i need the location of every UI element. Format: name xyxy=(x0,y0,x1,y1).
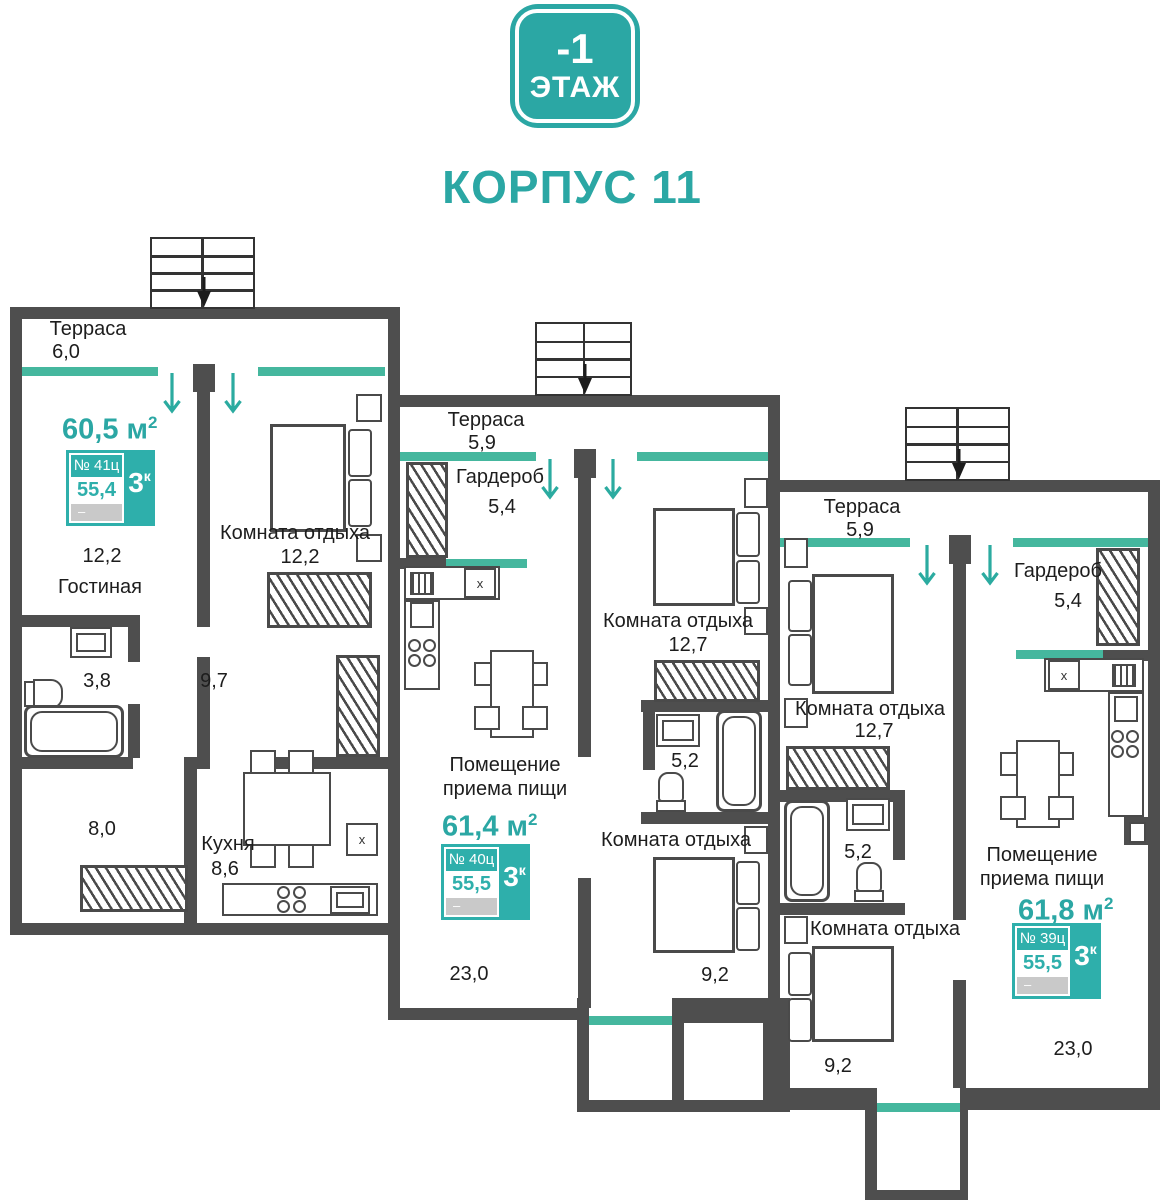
floor-badge-border xyxy=(515,9,635,123)
stove-icon xyxy=(277,900,290,913)
pillow-icon xyxy=(788,952,812,996)
pillow-icon xyxy=(348,429,372,477)
chair-icon xyxy=(250,750,276,774)
stove-icon xyxy=(293,900,306,913)
stove-icon xyxy=(277,886,290,899)
unit-status-bar: – xyxy=(446,898,497,915)
bathtub-icon xyxy=(716,710,762,812)
room-label: Комната отдыха xyxy=(220,522,370,545)
chair-icon xyxy=(522,706,548,730)
unit-living-area: 55,5 xyxy=(1017,952,1068,975)
nightstand-icon xyxy=(784,538,808,568)
room-label: Помещение xyxy=(449,754,560,777)
wardrobe-icon xyxy=(406,462,448,558)
toilet-icon xyxy=(656,800,686,812)
room-area: 8,6 xyxy=(211,858,239,881)
room-area: 12,7 xyxy=(669,634,708,657)
unit-number: № 40ц xyxy=(446,849,497,871)
floor-plan: -1 ЭТАЖ КОРПУС 11 xyxy=(0,0,1167,1200)
window-strip xyxy=(258,367,385,376)
chair-icon xyxy=(288,750,314,774)
unit-card[interactable]: № 40ц 55,5 – 3к xyxy=(441,844,530,920)
unit-rooms-badge: 3к xyxy=(1073,926,1098,996)
interior-wall xyxy=(578,452,591,757)
bath-sink-icon xyxy=(656,714,700,747)
window-strip xyxy=(637,452,768,461)
pillow-icon xyxy=(736,512,760,557)
entry-arrow-icon xyxy=(604,458,622,500)
stairs-icon xyxy=(150,237,255,309)
room-label: Гардероб xyxy=(1014,560,1102,583)
room-area: 12,2 xyxy=(281,546,320,569)
interior-wall xyxy=(641,812,768,824)
room-label: Терраса xyxy=(50,318,127,341)
toilet-icon xyxy=(658,772,684,802)
stove-icon xyxy=(408,654,421,667)
bay-niche xyxy=(589,998,672,1100)
pillow-icon xyxy=(736,907,760,951)
bathtub-icon xyxy=(24,705,124,758)
interior-wall xyxy=(780,903,905,915)
bed-icon xyxy=(653,857,735,953)
unit-status-bar: – xyxy=(1017,977,1068,994)
entry-arrow-icon xyxy=(918,544,936,586)
room-area: 3,8 xyxy=(83,670,111,693)
unit-card-left: № 39ц 55,5 – xyxy=(1015,926,1070,996)
interior-wall xyxy=(128,704,140,758)
room-area: 5,9 xyxy=(468,432,496,455)
room-area: 12,7 xyxy=(855,720,894,743)
entry-arrow-icon xyxy=(163,372,181,414)
entry-arrow-icon xyxy=(981,544,999,586)
fridge-mark: x xyxy=(359,832,366,847)
nightstand-icon xyxy=(784,916,808,944)
floor-badge: -1 ЭТАЖ xyxy=(510,4,640,128)
stove-icon xyxy=(423,639,436,652)
bed-icon xyxy=(812,574,894,694)
bed-icon xyxy=(653,508,735,606)
interior-wall xyxy=(22,615,140,627)
chair-icon xyxy=(1048,796,1074,820)
kitchen-sink-icon xyxy=(1112,664,1136,687)
bath-sink-icon xyxy=(846,798,890,831)
room-label: Комната отдыха xyxy=(601,829,751,852)
room-area: 9,2 xyxy=(701,964,729,987)
chair-icon xyxy=(474,706,500,730)
dining-table-icon xyxy=(243,772,331,846)
room-label: приема пищи xyxy=(443,778,567,801)
unit-card[interactable]: № 41ц 55,4 – 3к xyxy=(66,450,155,526)
room-area: 5,2 xyxy=(844,841,872,864)
room-label: Комната отдыха xyxy=(810,918,960,941)
wardrobe-icon xyxy=(267,572,372,628)
window-strip xyxy=(589,1016,672,1025)
kitchen-cabinet xyxy=(410,602,434,628)
unit-number: № 41ц xyxy=(71,455,122,477)
room-area: 9,7 xyxy=(200,670,228,693)
bath-sink-icon xyxy=(70,627,112,658)
unit-rooms-badge: 3к xyxy=(502,847,527,917)
room-area: 23,0 xyxy=(1054,1038,1093,1061)
nightstand-icon xyxy=(356,394,382,422)
pillow-icon xyxy=(788,998,812,1042)
bathtub-icon xyxy=(784,800,830,902)
unit-rooms-badge: 3к xyxy=(127,453,152,523)
unit-card-left: № 41ц 55,4 – xyxy=(69,453,124,523)
window-strip xyxy=(877,1103,960,1112)
entry-arrow-icon xyxy=(224,372,242,414)
interior-wall xyxy=(953,980,966,1088)
room-area: 5,4 xyxy=(1054,590,1082,613)
fridge-mark: x xyxy=(477,576,484,591)
interior-wall xyxy=(953,538,966,920)
room-label: Комната отдыха xyxy=(795,698,945,721)
room-label: Комната отдыха xyxy=(603,610,753,633)
stairs-icon xyxy=(905,407,1010,481)
stove-icon xyxy=(1126,745,1139,758)
stairs-down-arrow-icon xyxy=(951,449,967,479)
room-area: 5,4 xyxy=(488,496,516,519)
bay-niche xyxy=(684,1023,763,1100)
room-area: 6,0 xyxy=(52,341,80,364)
pillow-icon xyxy=(788,634,812,686)
fridge-icon: x xyxy=(464,568,496,598)
unit-card[interactable]: № 39ц 55,5 – 3к xyxy=(1012,923,1101,999)
kitchen-sink-icon xyxy=(330,886,370,914)
shaft-inner xyxy=(1129,822,1146,843)
unit-status-bar: – xyxy=(71,504,122,521)
room-label: Терраса xyxy=(824,496,901,519)
room-area: 12,2 xyxy=(83,545,122,568)
window-strip xyxy=(1013,538,1148,547)
room-label: Помещение xyxy=(986,844,1097,867)
pillow-icon xyxy=(736,560,760,604)
stove-icon xyxy=(1111,745,1124,758)
unit-total-area: 61,4 м2 xyxy=(442,810,537,844)
toilet-icon xyxy=(854,890,884,902)
room-area: 8,0 xyxy=(88,818,116,841)
wardrobe-icon xyxy=(654,660,760,702)
stove-icon xyxy=(423,654,436,667)
unit-living-area: 55,5 xyxy=(446,873,497,896)
stove-icon xyxy=(293,886,306,899)
interior-wall xyxy=(197,367,210,627)
kitchen-sink-icon xyxy=(410,572,434,595)
stairs-down-arrow-icon xyxy=(577,364,593,394)
room-label: Гостиная xyxy=(58,576,142,599)
fridge-icon: x xyxy=(1048,660,1080,690)
fridge-mark: x xyxy=(1061,668,1068,683)
chair-icon xyxy=(288,844,314,868)
wardrobe-icon xyxy=(80,865,188,912)
wardrobe-icon xyxy=(786,746,890,790)
stove-icon xyxy=(1111,730,1124,743)
unit-number: № 39ц xyxy=(1017,928,1068,950)
interior-wall xyxy=(578,878,591,1008)
pillow-icon xyxy=(348,479,372,527)
stairs-icon xyxy=(535,322,632,396)
chair-icon xyxy=(1000,796,1026,820)
interior-wall xyxy=(643,712,655,770)
toilet-icon xyxy=(856,862,882,892)
bed-icon xyxy=(270,424,346,532)
stairs-down-arrow-icon xyxy=(196,277,212,307)
room-area: 5,9 xyxy=(846,519,874,542)
wardrobe-icon xyxy=(1096,548,1140,646)
bed-icon xyxy=(812,946,894,1042)
pillow-icon xyxy=(788,580,812,632)
kitchen-cabinet xyxy=(1114,696,1138,722)
stove-icon xyxy=(1126,730,1139,743)
stove-icon xyxy=(408,639,421,652)
room-area: 9,2 xyxy=(824,1055,852,1078)
unit-card-left: № 40ц 55,5 – xyxy=(444,847,499,917)
unit-total-area: 60,5 м2 xyxy=(62,413,157,447)
nightstand-icon xyxy=(744,478,768,508)
unit-living-area: 55,4 xyxy=(71,479,122,502)
room-label: Кухня xyxy=(201,833,255,856)
wardrobe-icon xyxy=(336,655,380,757)
fridge-icon: x xyxy=(346,823,378,856)
interior-wall xyxy=(184,757,210,769)
interior-wall xyxy=(128,627,140,662)
interior-wall xyxy=(22,757,133,769)
building-title: КОРПУС 11 xyxy=(442,160,702,214)
room-label: приема пищи xyxy=(980,868,1104,891)
pillow-icon xyxy=(736,861,760,905)
room-area: 5,2 xyxy=(671,750,699,773)
room-label: Терраса xyxy=(448,409,525,432)
room-area: 23,0 xyxy=(450,963,489,986)
window-strip xyxy=(22,367,158,376)
interior-wall xyxy=(893,802,905,860)
room-label: Гардероб xyxy=(456,466,544,489)
